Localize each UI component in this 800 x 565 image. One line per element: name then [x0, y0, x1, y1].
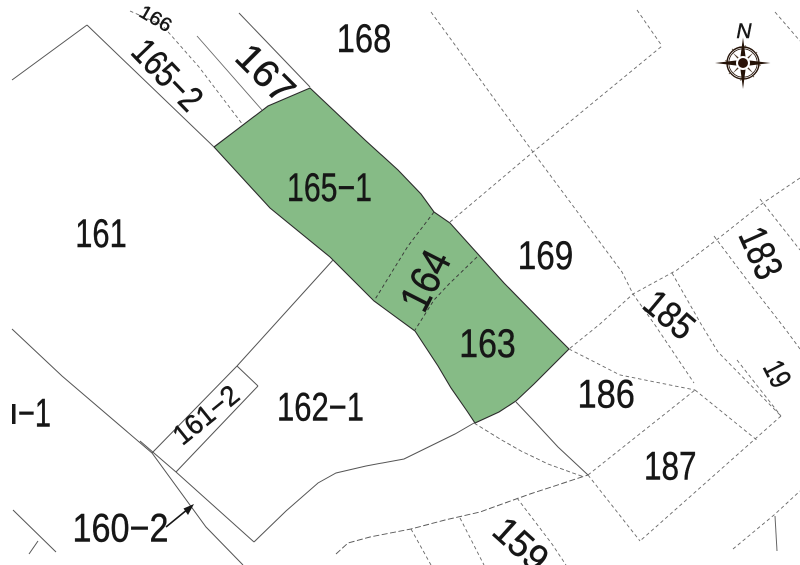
svg-text:187: 187 — [644, 445, 697, 489]
svg-text:186: 186 — [577, 372, 635, 416]
svg-text:−1: −1 — [18, 392, 51, 436]
svg-text:163: 163 — [459, 322, 516, 366]
svg-text:161: 161 — [75, 212, 127, 256]
svg-text:162−1: 162−1 — [277, 386, 364, 430]
svg-text:168: 168 — [337, 17, 392, 61]
svg-text:N: N — [736, 20, 752, 43]
svg-text:165−1: 165−1 — [287, 166, 372, 210]
svg-text:169: 169 — [518, 234, 574, 278]
svg-text:160−2: 160−2 — [73, 507, 169, 551]
